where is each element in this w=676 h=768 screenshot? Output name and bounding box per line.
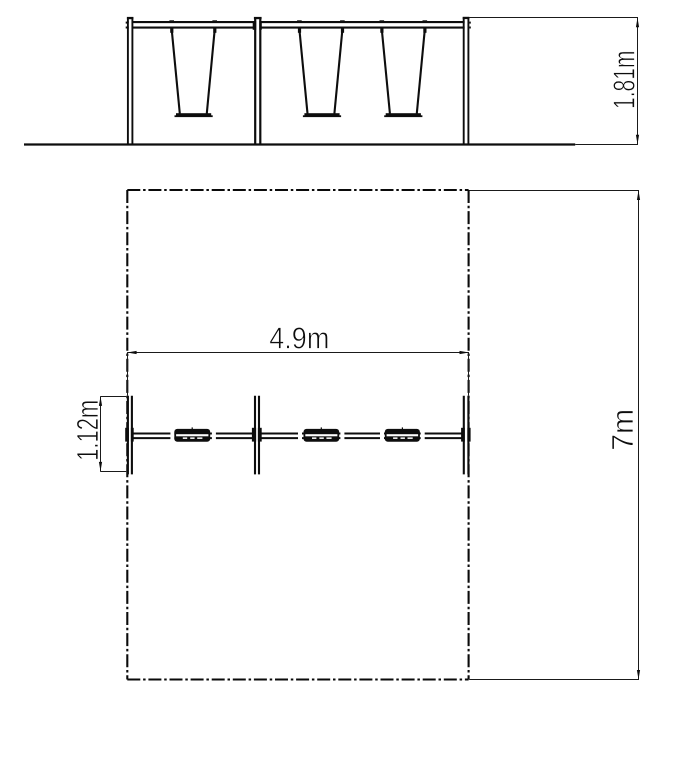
svg-text:7m: 7m <box>605 409 640 451</box>
svg-text:1.12m: 1.12m <box>70 400 105 461</box>
svg-text:4.9m: 4.9m <box>269 320 329 355</box>
svg-text:1.81m: 1.81m <box>606 51 641 110</box>
